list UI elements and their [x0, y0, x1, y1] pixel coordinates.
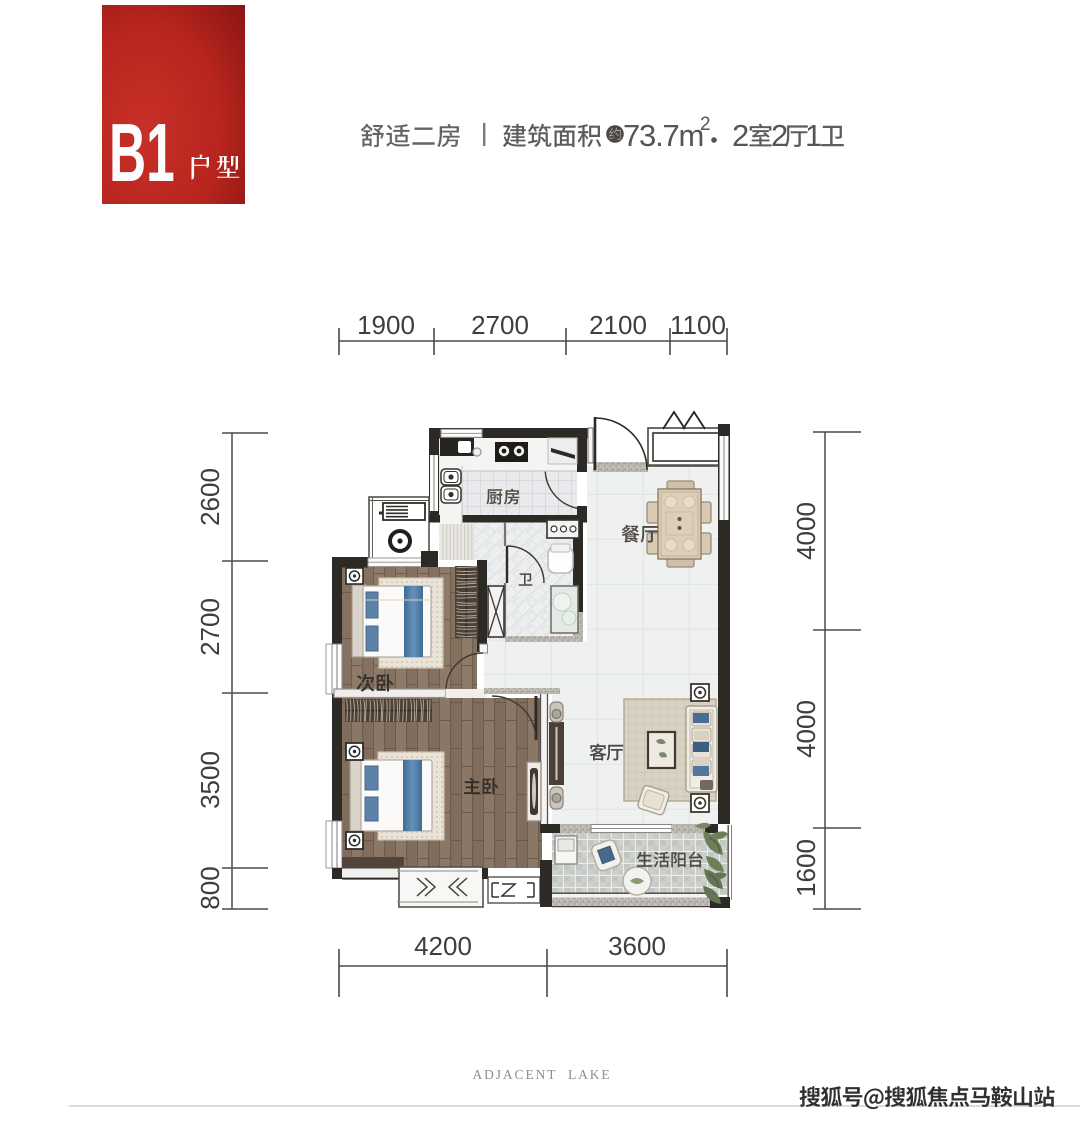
- svg-text:4000: 4000: [791, 700, 821, 758]
- svg-text:2: 2: [771, 118, 788, 153]
- svg-text:2100: 2100: [589, 310, 647, 340]
- svg-text:1600: 1600: [791, 839, 821, 897]
- svg-text:3500: 3500: [195, 751, 225, 809]
- svg-text:2600: 2600: [195, 468, 225, 526]
- svg-text:3600: 3600: [608, 931, 666, 961]
- svg-text:4000: 4000: [791, 502, 821, 560]
- svg-text:B1: B1: [109, 105, 175, 199]
- svg-text:1900: 1900: [357, 310, 415, 340]
- svg-text:2700: 2700: [471, 310, 529, 340]
- svg-text:4200: 4200: [414, 931, 472, 961]
- svg-text:73.7m: 73.7m: [623, 118, 703, 153]
- svg-text:2700: 2700: [195, 598, 225, 656]
- svg-text:1: 1: [805, 118, 822, 153]
- svg-text:2: 2: [700, 114, 711, 135]
- svg-text:ADJACENT LAKE: ADJACENT LAKE: [472, 1067, 611, 1082]
- svg-text:1100: 1100: [670, 310, 726, 340]
- svg-text:800: 800: [195, 866, 225, 909]
- svg-text:2: 2: [732, 118, 749, 153]
